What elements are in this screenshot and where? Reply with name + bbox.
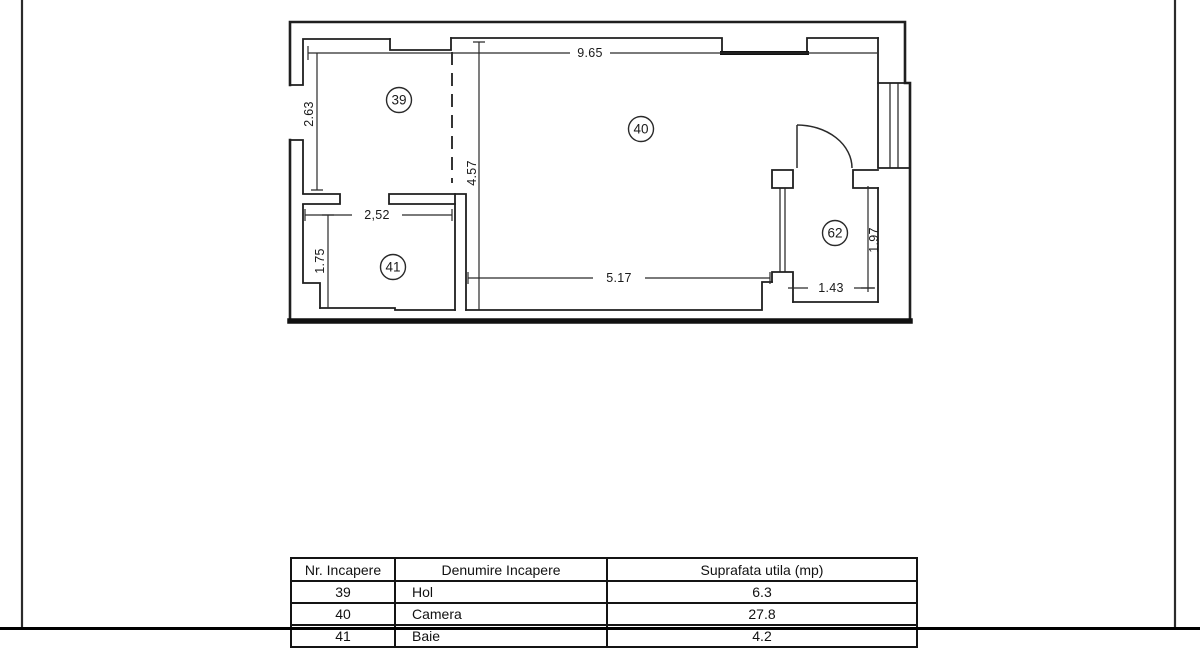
cell-area: 27.8 [607, 603, 917, 625]
dim-label-room62-width: 1.43 [818, 281, 844, 295]
dim-label-top-width: 9.65 [577, 46, 603, 60]
dim-label-left-height: 2.63 [302, 101, 316, 127]
room-39-label: 39 [391, 93, 406, 108]
header-denumire: Denumire Incapere [395, 558, 607, 581]
cell-name: Camera [395, 603, 607, 625]
table-header-row: Nr. Incapere Denumire Incapere Suprafata… [291, 558, 917, 581]
dim-label-room40-width: 5.17 [606, 271, 632, 285]
cell-nr: 39 [291, 581, 395, 603]
room-area-table: Nr. Incapere Denumire Incapere Suprafata… [290, 557, 918, 648]
room-62-label: 62 [827, 226, 842, 241]
door-swing [797, 125, 852, 168]
dim-label-interior-height: 4.57 [465, 160, 479, 186]
room-40-label: 40 [633, 122, 648, 137]
dimension-labels: 9.65 2.63 4.57 2,52 1.75 5.17 1.43 1.97 [302, 46, 881, 295]
table-row: 40 Camera 27.8 [291, 603, 917, 625]
header-suprafata: Suprafata utila (mp) [607, 558, 917, 581]
outer-walls [290, 22, 910, 321]
dim-label-room41-height: 1.75 [313, 248, 327, 274]
header-nr-incapere: Nr. Incapere [291, 558, 395, 581]
table-row: 39 Hol 6.3 [291, 581, 917, 603]
cell-name: Hol [395, 581, 607, 603]
room-labels: 39 40 41 62 [381, 88, 848, 280]
dim-label-room41-width: 2,52 [364, 208, 390, 222]
cell-nr: 40 [291, 603, 395, 625]
room-41-label: 41 [385, 260, 400, 275]
cell-area: 6.3 [607, 581, 917, 603]
dim-label-room62-height: 1.97 [867, 227, 881, 253]
floor-plan-drawing: 9.65 2.63 4.57 2,52 1.75 5.17 1.43 1.97 … [0, 0, 1200, 630]
inner-walls [290, 38, 910, 310]
